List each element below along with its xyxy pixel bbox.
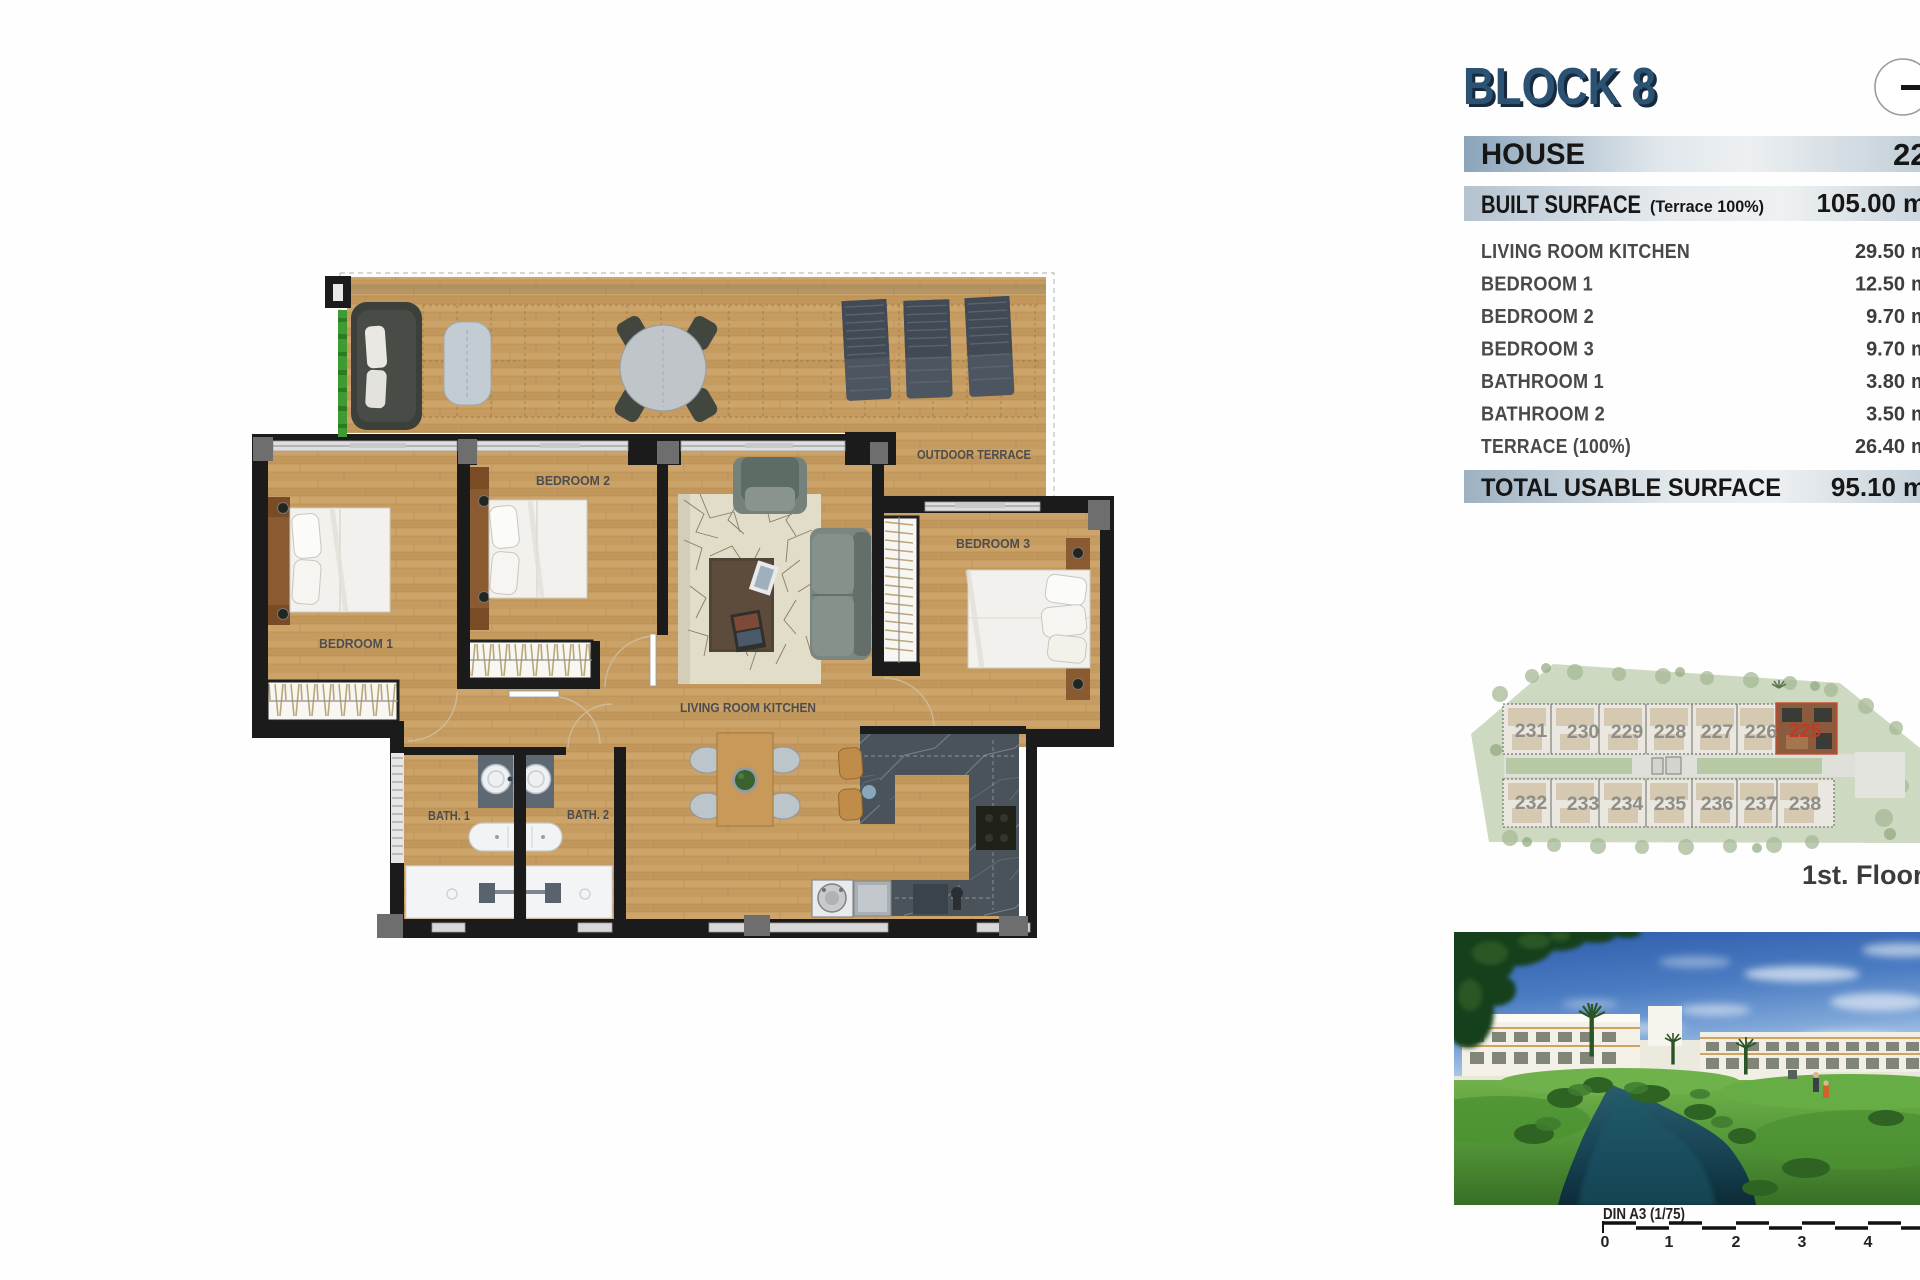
svg-text:232: 232 xyxy=(1515,792,1548,814)
svg-text:26.40: 26.40 xyxy=(1855,436,1905,458)
svg-text:BATH. 1: BATH. 1 xyxy=(428,809,470,823)
svg-text:95.10: 95.10 xyxy=(1831,472,1896,502)
svg-text:237: 237 xyxy=(1745,793,1778,815)
svg-text:238: 238 xyxy=(1789,793,1822,815)
svg-text:m²: m² xyxy=(1911,306,1920,328)
svg-text:235: 235 xyxy=(1654,793,1687,815)
svg-text:BEDROOM 1: BEDROOM 1 xyxy=(1481,274,1593,296)
svg-text:12.50: 12.50 xyxy=(1855,274,1905,296)
svg-text:HOUSE: HOUSE xyxy=(1481,138,1585,171)
svg-text:1st. Floor: 1st. Floor xyxy=(1802,860,1920,890)
svg-text:2: 2 xyxy=(1732,1234,1741,1251)
svg-text:BATHROOM 1: BATHROOM 1 xyxy=(1481,371,1604,393)
svg-text:230: 230 xyxy=(1567,721,1600,743)
svg-text:(Terrace 100%): (Terrace 100%) xyxy=(1650,198,1764,216)
svg-text:m²: m² xyxy=(1911,436,1920,458)
svg-text:3.80: 3.80 xyxy=(1866,371,1905,393)
svg-text:OUTDOOR TERRACE: OUTDOOR TERRACE xyxy=(917,447,1031,462)
svg-text:231: 231 xyxy=(1515,720,1548,742)
svg-text:m²: m² xyxy=(1911,371,1920,393)
svg-text:229: 229 xyxy=(1611,721,1644,743)
svg-text:BATHROOM 2: BATHROOM 2 xyxy=(1481,404,1605,426)
svg-text:TOTAL USABLE SURFACE: TOTAL USABLE SURFACE xyxy=(1481,474,1781,502)
svg-text:BUILT SURFACE: BUILT SURFACE xyxy=(1481,191,1641,219)
svg-text:234: 234 xyxy=(1611,793,1644,815)
svg-text:BEDROOM 2: BEDROOM 2 xyxy=(1481,306,1594,328)
svg-text:1: 1 xyxy=(1665,1234,1674,1251)
svg-text:227: 227 xyxy=(1701,721,1734,743)
svg-text:DIN A3 (1/75): DIN A3 (1/75) xyxy=(1603,1206,1685,1223)
svg-text:TERRACE (100%): TERRACE (100%) xyxy=(1481,436,1631,458)
svg-text:LIVING ROOM KITCHEN: LIVING ROOM KITCHEN xyxy=(680,700,816,715)
svg-text:225: 225 xyxy=(1789,720,1822,742)
svg-text:m²: m² xyxy=(1903,188,1920,218)
svg-text:m²: m² xyxy=(1911,404,1920,426)
svg-text:LIVING ROOM KITCHEN: LIVING ROOM KITCHEN xyxy=(1481,241,1690,263)
svg-text:3.50: 3.50 xyxy=(1866,404,1905,426)
svg-text:BEDROOM 1: BEDROOM 1 xyxy=(319,636,393,651)
svg-text:BATH. 2: BATH. 2 xyxy=(567,808,609,822)
svg-text:BLOCK 8: BLOCK 8 xyxy=(1463,58,1656,116)
svg-text:BEDROOM 2: BEDROOM 2 xyxy=(536,473,610,488)
svg-text:m²: m² xyxy=(1911,241,1920,263)
svg-text:226: 226 xyxy=(1745,721,1778,743)
svg-text:3: 3 xyxy=(1798,1234,1807,1251)
svg-text:4: 4 xyxy=(1864,1234,1873,1251)
svg-text:9.70: 9.70 xyxy=(1866,306,1905,328)
svg-text:225: 225 xyxy=(1893,137,1920,172)
svg-text:m²: m² xyxy=(1911,274,1920,296)
svg-text:233: 233 xyxy=(1567,793,1600,815)
svg-text:29.50: 29.50 xyxy=(1855,241,1905,263)
svg-text:BEDROOM 3: BEDROOM 3 xyxy=(956,536,1030,551)
svg-text:BEDROOM 3: BEDROOM 3 xyxy=(1481,339,1594,361)
svg-text:0: 0 xyxy=(1601,1234,1610,1251)
svg-text:m²: m² xyxy=(1911,339,1920,361)
svg-text:105.00: 105.00 xyxy=(1816,188,1896,218)
svg-text:9.70: 9.70 xyxy=(1866,339,1905,361)
svg-text:228: 228 xyxy=(1654,721,1687,743)
svg-text:m²: m² xyxy=(1903,472,1920,502)
svg-text:236: 236 xyxy=(1701,793,1734,815)
